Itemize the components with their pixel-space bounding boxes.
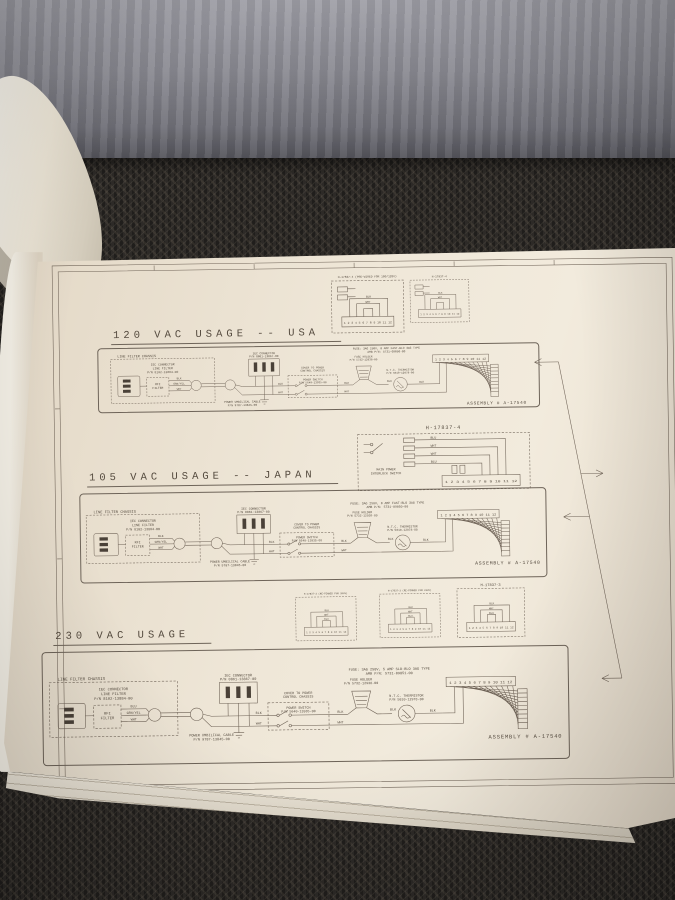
- fuse-holder-pn: P/N 5732-12938-00: [347, 513, 378, 517]
- dashed-outline: [331, 280, 404, 333]
- ground-icon: [234, 733, 245, 738]
- fuse-holder: FUSE: 3AG 250V, 5 AMP SLO-BLO 3AG TYPE A…: [344, 668, 431, 715]
- thermistor-pn: P/N 5010-12978-00: [387, 528, 418, 532]
- jumper-wires: [415, 439, 506, 476]
- terminal-numbers: 1 2 3 4 5 6 7 8 9 10 11 12: [420, 313, 460, 317]
- thermistor: N.T.C. THERMISTOR P/N 5010-12978-00 BLK …: [387, 525, 434, 550]
- iec-connector: IEC CONNECTOR P/N 0861-13867-00: [237, 506, 271, 564]
- jumper-box-title: H-17837-3 (RE-PINNED FOR 220V): [388, 589, 432, 593]
- wire-label: WHT: [408, 610, 413, 613]
- cable-connector-icon: [211, 538, 222, 549]
- jumper-box-repinned-220v: H-17837-3 (RE-PINNED FOR 220V) BLK WHT B…: [375, 587, 446, 640]
- schematic-230vac: LINE FILTER CHASSIS IEC CONNECTOR LINE F…: [41, 645, 570, 766]
- edge-connector: [490, 364, 498, 396]
- assembly-number-label: ASSEMBLY # A-17540: [488, 733, 562, 741]
- umbilical-pn: P/N 9787-13845-00: [214, 563, 246, 567]
- fuse-note-pn: AMB P/N: 5731-09850-00: [367, 505, 409, 510]
- jumper-box-title: H-17837-3 (RE-PINNED FOR 200V): [304, 592, 348, 596]
- schematic-120vac-usa: LINE FILTER CHASSIS IEC CONNECTOR LINE F…: [97, 342, 540, 413]
- wire-label: BLU: [430, 436, 436, 440]
- jumper-box-h17837-4-interlock: H-17837-4 MAIN POWER INTERLOCK SWITCH BL…: [355, 422, 532, 492]
- assembly-number-label: ASSEMBLY # A-17540: [467, 400, 527, 407]
- cover-label: CONTROL CHASSIS: [283, 695, 313, 699]
- line-filter-chassis-label: LINE FILTER CHASSIS: [58, 678, 106, 683]
- wire-label: GRN/YEL: [173, 381, 185, 385]
- schematic-drawing: LINE FILTER CHASSIS IEC CONNECTOR LINE F…: [42, 646, 569, 765]
- cable-connector-icon: [191, 380, 201, 390]
- wire-label: BLK: [325, 609, 330, 612]
- wire-label: BLK: [388, 538, 394, 541]
- jumper-box-h17837-4: H-17837-4 BLK WHT 1 2 3 4 5 6 7 8 9 10 1…: [408, 269, 471, 328]
- fuse-holder-icon: [350, 522, 371, 543]
- wire-label: BLK: [256, 712, 263, 716]
- iec-line-filter-label: LINE FILTER: [101, 693, 127, 697]
- flow-arrow-line: [534, 358, 622, 683]
- wire-label: BLK: [419, 381, 424, 384]
- interlock-switch-icon: [364, 443, 383, 454]
- terminal-strip-fanout: 1 2 3 4 5 6 7 8 9 10 11 12: [442, 676, 528, 730]
- umbilical-pn: P/N 9787-13845-00: [194, 737, 230, 743]
- umbilical-pn: P/N 9787-13845-00: [228, 403, 258, 407]
- fuse-holder-icon: [353, 366, 372, 385]
- iec-connector: IEC CONNECTOR P/N 0861-13867-00: [219, 674, 258, 738]
- photo-scene: H-17837-4 (PRE-WIRED FOR 100/120V) BLK W…: [0, 0, 675, 900]
- cable-connector-icon: [225, 380, 235, 390]
- wire-fanout: [441, 518, 501, 553]
- fuse-holder: FUSE: 3AG 250V, 8 AMP FAST-BLO 3AG TYPE …: [347, 501, 425, 544]
- wire-label: BLU: [408, 615, 413, 618]
- terminal-numbers: 1 2 3 4 5 6 7 8 9 10 11 12: [449, 681, 512, 686]
- arrow-left-bottom: [602, 675, 622, 682]
- wire-label: BLK: [158, 535, 164, 538]
- disconnect-terminal-icon: [404, 454, 415, 459]
- arrow-right-mid: [581, 470, 603, 477]
- fuse-holder: FUSE: 3AG 250V, 8 AMP FAST-BLO 3AG TYPE …: [349, 347, 420, 385]
- line-filter-chassis: LINE FILTER CHASSIS IEC CONNECTOR LINE F…: [86, 510, 200, 564]
- wire-label: WHT: [337, 721, 343, 725]
- terminal-numbers: 1 2 3 4 5 6 7 8 9 10 11 12: [390, 627, 431, 631]
- thermistor: N.T.C. THERMISTOR P/N 5010-12978-00 BLK …: [386, 368, 429, 391]
- disconnect-terminal-icon: [404, 438, 415, 443]
- wire-label: BLK: [337, 711, 344, 715]
- terminal-strip-fanout: 1 2 3 4 5 6 7 8 9 10 11 12: [429, 354, 499, 398]
- line-filter-chassis-label: LINE FILTER CHASSIS: [94, 511, 137, 516]
- iec-line-filter-pn: P/N 8102-13884-00: [126, 527, 160, 532]
- rfi-label: FILTER: [132, 545, 144, 549]
- jumper-box-title: H-17837-4: [426, 425, 461, 431]
- wire-label: BLU: [324, 618, 329, 621]
- wire-fanout: [436, 362, 491, 394]
- ground-icon: [250, 559, 259, 564]
- iec-connector-pn: P/N 0861-13867-00: [237, 510, 269, 514]
- iec-line-filter-label: IEC CONNECTOR: [99, 688, 129, 692]
- disconnect-terminal-icon: [404, 446, 415, 451]
- wire-label: WHT: [344, 390, 349, 393]
- terminal-numbers: 1 2 3 4 5 6 7 8 9 10 11 12: [469, 626, 514, 630]
- iec-connector: IEC CONNECTOR P/N 0861-13867-00: [248, 352, 279, 404]
- fabric-backdrop: [0, 0, 675, 158]
- disconnect-terminal-icon: [337, 287, 347, 292]
- wire-label: WHT: [489, 607, 494, 610]
- wire-label: BLK: [177, 377, 182, 380]
- wire-label: WHT: [341, 549, 347, 552]
- line-filter-chassis: LINE FILTER CHASSIS IEC CONNECTOR LINE F…: [49, 677, 178, 737]
- rfi-label: FILTER: [152, 386, 163, 390]
- rfi-label: RFI: [104, 712, 111, 716]
- line-filter-chassis: LINE FILTER CHASSIS IEC CONNECTOR LINE F…: [111, 354, 216, 403]
- component-icon: [460, 465, 465, 473]
- wire-label: WHT: [131, 718, 137, 722]
- jumper-box-title: H-17837-3: [480, 584, 500, 588]
- arrow-left-mid: [564, 513, 590, 520]
- cover-label: CONTROL CHASSIS: [293, 526, 320, 529]
- wire-label: BLK: [344, 382, 349, 385]
- wire-label: BLK: [423, 539, 429, 542]
- wire-label: WHT: [365, 301, 371, 304]
- thermistor: N.T.C. THERMISTOR P/N 5010-12978-00 BLK …: [389, 694, 442, 722]
- ground-icon: [260, 400, 269, 404]
- wire-label: WHT: [431, 444, 437, 448]
- terminal-numbers: 1 2 3 4 5 6 7 8 9 10 11 12: [440, 513, 496, 518]
- disconnect-terminal-icon: [415, 291, 423, 295]
- disconnect-terminal-icon: [404, 462, 415, 467]
- dashed-outline: [410, 279, 469, 322]
- wire-label: GRN/YEL: [127, 711, 141, 716]
- terminal-numbers: 1 2 3 4 5 6 7 8 9 10 11 12: [344, 321, 392, 325]
- edge-connector: [518, 689, 528, 729]
- iec-connector-pn: P/N 0861-13867-00: [220, 677, 256, 683]
- jumper-box-h17837-3: H-17837-3 BLK WHT BLU 1 2 3 4 5 6 7 8 9 …: [451, 580, 532, 639]
- terminal-strip-fanout: 1 2 3 4 5 6 7 8 9 10 11 12: [434, 509, 510, 557]
- wire-label: BLK: [390, 708, 397, 712]
- wire-label: BLK: [409, 606, 414, 609]
- wire-label: BLK: [387, 380, 392, 383]
- wire-label: WHT: [177, 388, 182, 391]
- schematic-drawing: LINE FILTER CHASSIS IEC CONNECTOR LINE F…: [80, 488, 546, 582]
- rfi-label: FILTER: [101, 717, 115, 721]
- fuse-holder-pn: P/N 5732-12938-00: [344, 681, 378, 686]
- jumper-box-repinned-200v: H-17837-3 (RE-PINNED FOR 200V) BLK WHT B…: [292, 590, 361, 643]
- line-filter-chassis-label: LINE FILTER CHASSIS: [117, 355, 156, 360]
- wire-label: WHT: [324, 614, 329, 617]
- power-switch-pn: P/N 5640-13935-00: [281, 709, 315, 714]
- section-title-230vac: 230 VAC USAGE: [53, 629, 211, 646]
- wire-label: BLK: [366, 296, 372, 299]
- wire-label: BLU: [489, 612, 494, 615]
- cable-connector-icon: [174, 538, 185, 549]
- fuse-holder-pn: P/N 5732-12938-00: [350, 357, 378, 361]
- iec-line-filter-pn: P/N 8102-13884-00: [147, 370, 178, 374]
- thermistor-pn: P/N 5010-12978-00: [389, 697, 423, 702]
- fuse-note-pn: AMB P/N: 5731-09850-00: [367, 349, 405, 354]
- iec-connector-pn: P/N 0861-13867-00: [249, 354, 279, 358]
- terminal-numbers: 1 2 3 4 5 6 7 8 9 10 11 12: [445, 479, 517, 484]
- cable-connector-icon: [190, 708, 203, 721]
- wire-label: BLU: [130, 705, 136, 709]
- thermistor-pn: P/N 5010-12978-00: [386, 370, 414, 374]
- cable-connector-icon: [148, 709, 161, 722]
- wire-label: BLK: [269, 541, 275, 544]
- wire-label: WHT: [438, 296, 443, 299]
- wire-label: WHT: [269, 550, 275, 553]
- terminal-numbers: 1 2 3 4 5 6 7 8 9 10 11 12: [435, 358, 486, 362]
- wire-label: BLK: [278, 383, 283, 386]
- edge-connector: [501, 521, 510, 556]
- section-title-120vac: 120 VAC USAGE -- USA: [111, 327, 341, 345]
- fuse-holder-icon: [348, 691, 371, 714]
- cover-label: CONTROL CHASSIS: [300, 369, 325, 372]
- schematic-page: H-17837-4 (PRE-WIRED FOR 100/120V) BLK W…: [0, 245, 675, 845]
- page-content: H-17837-4 (PRE-WIRED FOR 100/120V) BLK W…: [0, 240, 675, 849]
- disconnect-terminal-icon: [338, 295, 348, 300]
- wire-label: WHT: [158, 547, 164, 550]
- assembly-number-label: ASSEMBLY # A-17540: [475, 560, 541, 567]
- schematic-drawing: LINE FILTER CHASSIS IEC CONNECTOR LINE F…: [98, 343, 539, 412]
- wire-fanout: [450, 686, 518, 726]
- jumper-box-title: H-17837-4 (PRE-WIRED FOR 100/120V): [338, 274, 397, 279]
- wire-label: WHT: [431, 452, 437, 456]
- wire-label: BLK: [438, 292, 443, 295]
- iec-line-filter-pn: P/N 8102-13884-00: [94, 696, 133, 702]
- wire-label: BLK: [489, 602, 494, 605]
- terminal-numbers: 1 2 3 4 5 6 7 8 9 10 11 12: [306, 631, 347, 635]
- wire-label: WHT: [278, 391, 283, 394]
- wire-label: WHT: [256, 722, 262, 726]
- disconnect-terminal-icon: [415, 285, 423, 289]
- wire-label: BLK: [341, 540, 347, 543]
- wire-label: BLU: [431, 460, 437, 464]
- interlock-switch-label: INTERLOCK SWITCH: [371, 471, 402, 475]
- component-icon: [452, 465, 457, 473]
- wire-label: BLK: [430, 710, 437, 714]
- fuse-note-pn: AMB P/N: 5731-09851-00: [366, 671, 413, 677]
- jumper-box-title: H-17837-4: [432, 275, 447, 278]
- schematic-105vac-japan: LINE FILTER CHASSIS IEC CONNECTOR LINE F…: [79, 487, 547, 584]
- jumper-box-prewired-100-120v: H-17837-4 (PRE-WIRED FOR 100/120V) BLK W…: [329, 272, 406, 335]
- wire-label: GRN/YEL: [155, 540, 168, 544]
